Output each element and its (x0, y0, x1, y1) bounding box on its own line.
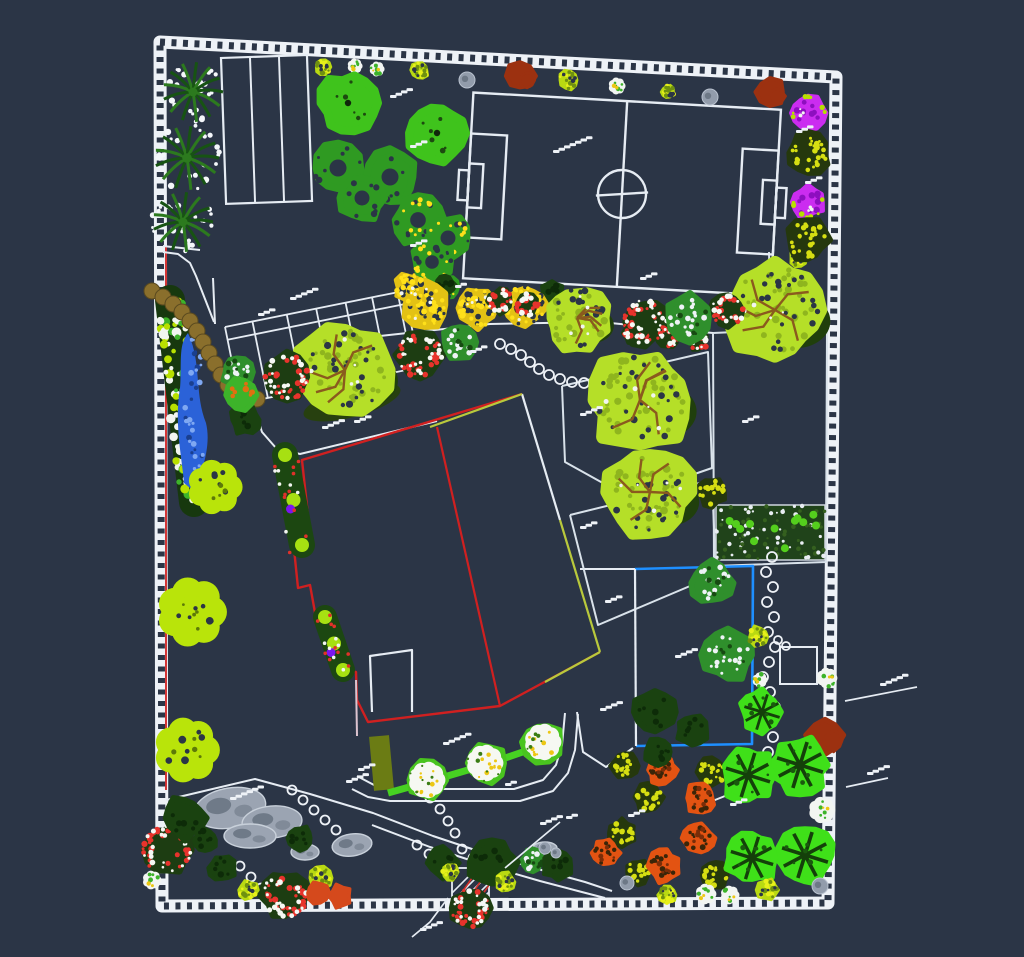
plant-spokeTree (741, 689, 781, 733)
plant-magenta (791, 185, 824, 220)
plant-orangeTree (648, 850, 678, 883)
plant-flowerWhite (522, 724, 561, 763)
dim-text-mark (600, 701, 623, 711)
dim-text-mark (540, 815, 563, 825)
plant-roundDot (321, 76, 378, 131)
plant-branchTree (606, 455, 699, 534)
plant-spokeTree (727, 834, 774, 879)
dim-text-mark (505, 781, 517, 786)
dim-text-mark (605, 595, 623, 603)
plant-flowerRed (452, 888, 491, 929)
plant-palm (164, 62, 223, 123)
dim-text-mark (420, 921, 443, 931)
plant-magenta (791, 94, 827, 130)
plant-greenWhite (668, 293, 708, 342)
pavilion-square (780, 647, 817, 684)
plant-branchTree (551, 288, 614, 349)
dim-text-mark (675, 648, 698, 658)
plant-greenWhite (702, 629, 752, 678)
plant-whiteShrub (348, 59, 363, 74)
plant-yellowShrub (238, 880, 258, 900)
plant-oliveYellow (697, 758, 726, 786)
plant-stone (551, 848, 561, 858)
plant-greenWhite (444, 327, 477, 359)
plant-flowerRed (260, 875, 309, 918)
plant-yellowShrub (559, 70, 577, 90)
hedge-strip-0 (379, 736, 384, 790)
plant-branchTree (732, 263, 830, 356)
site-plan-drawing[interactable] (0, 0, 1024, 957)
plant-solidOrange (308, 882, 330, 904)
plant-flowerWhite (409, 761, 446, 798)
plant-roundDot (409, 108, 465, 162)
plant-stone (702, 89, 718, 105)
leader-line-0 (845, 687, 917, 701)
dim-text-mark (867, 765, 890, 775)
plant-oliveYellow (789, 220, 831, 259)
plant-ring (340, 178, 385, 219)
plant-stone (620, 876, 634, 890)
plant-oliveYellow (610, 753, 639, 778)
dim-text-mark (805, 176, 823, 184)
plant-whiteShrub (809, 797, 835, 823)
dim-text-mark (880, 674, 909, 686)
soccer-field (453, 92, 791, 296)
plant-darkTree (645, 739, 670, 766)
dim-text-mark (443, 733, 472, 745)
plant-darkTree (678, 716, 707, 745)
plant-darkTree (194, 828, 216, 851)
dim-text-mark (258, 308, 276, 316)
plant-yellowShrub (411, 62, 429, 79)
dim-text-mark (640, 272, 658, 280)
plant-darkTree (208, 856, 234, 879)
dim-text-mark (290, 288, 319, 300)
plant-spokeTree (772, 739, 827, 794)
plant-rust (506, 62, 536, 88)
dim-text-mark (580, 521, 598, 529)
plant-yellowShrub (661, 84, 676, 98)
plant-rust (756, 78, 786, 106)
plant-flowerRed (263, 352, 310, 400)
plant-oliveYellow (698, 479, 725, 508)
plant-oliveYellow (789, 132, 827, 173)
plant-stone (539, 842, 551, 854)
dim-text-mark (628, 809, 646, 817)
leader-line-1 (846, 778, 888, 787)
plant-flowerStar (159, 577, 227, 646)
plant-spokeTree (726, 750, 773, 799)
dim-text-mark (390, 88, 413, 98)
flower-bed-1 (316, 610, 351, 677)
plant-stone (459, 72, 475, 88)
plant-oliveYellow (635, 783, 664, 811)
plant-orangeTree (688, 784, 714, 813)
layer-field (453, 92, 791, 296)
plant-spokeTree (776, 830, 832, 882)
plant-stone (812, 878, 828, 894)
plant-yellowShrub (756, 879, 779, 900)
plant-orangeTree (682, 824, 715, 852)
plant-yellowShrub (315, 59, 331, 75)
plant-greenOrange (226, 379, 257, 411)
plant-whiteShrub (370, 62, 385, 77)
path-2 (213, 278, 215, 324)
bays-building (221, 55, 312, 204)
dim-text-mark (742, 415, 760, 423)
plant-darkTree (634, 691, 676, 731)
dim-text-mark (553, 136, 593, 153)
plant-branchTree (595, 355, 697, 444)
plant-whiteShrub (753, 672, 768, 688)
plant-darkTree (287, 826, 310, 851)
cad-viewport (0, 0, 1024, 957)
plant-flowerWhite (467, 745, 505, 783)
plant-branchTree (300, 329, 398, 411)
plant-whiteShrub (609, 78, 626, 95)
dim-text-mark (566, 814, 578, 819)
